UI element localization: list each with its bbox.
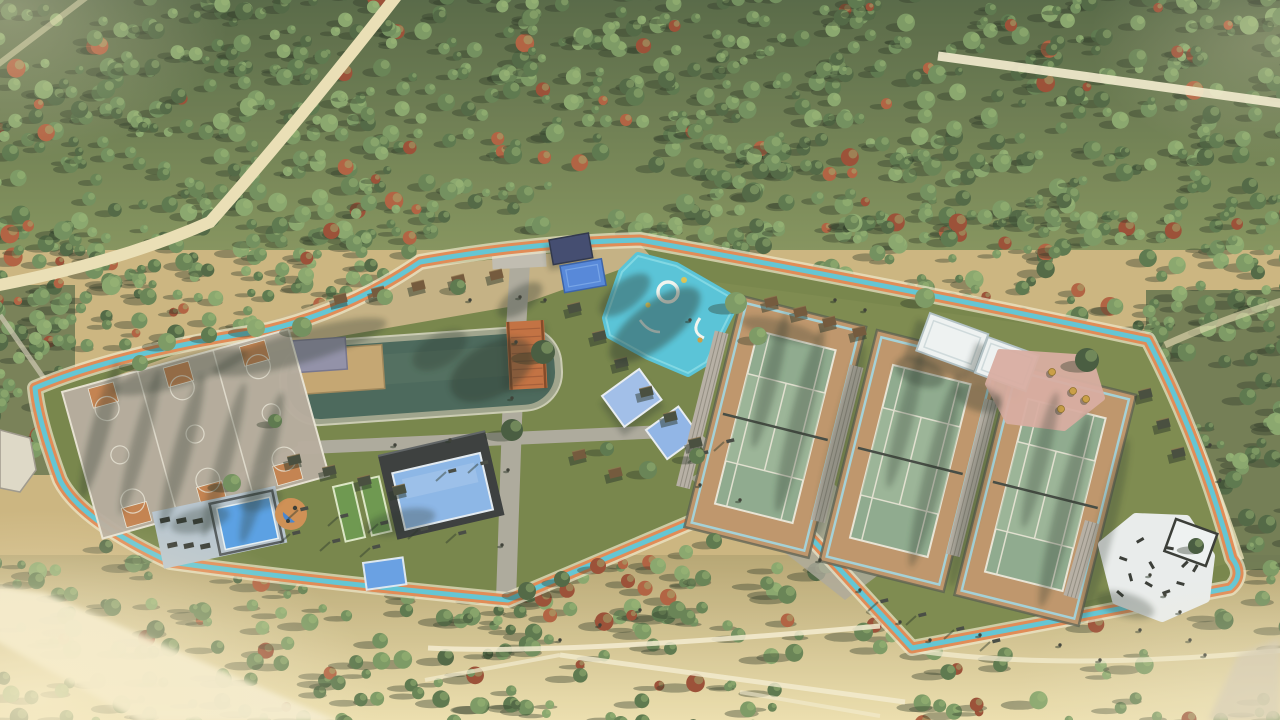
aerial-render — [0, 0, 1280, 720]
atmosphere — [0, 0, 1280, 720]
scene-svg — [0, 0, 1280, 720]
